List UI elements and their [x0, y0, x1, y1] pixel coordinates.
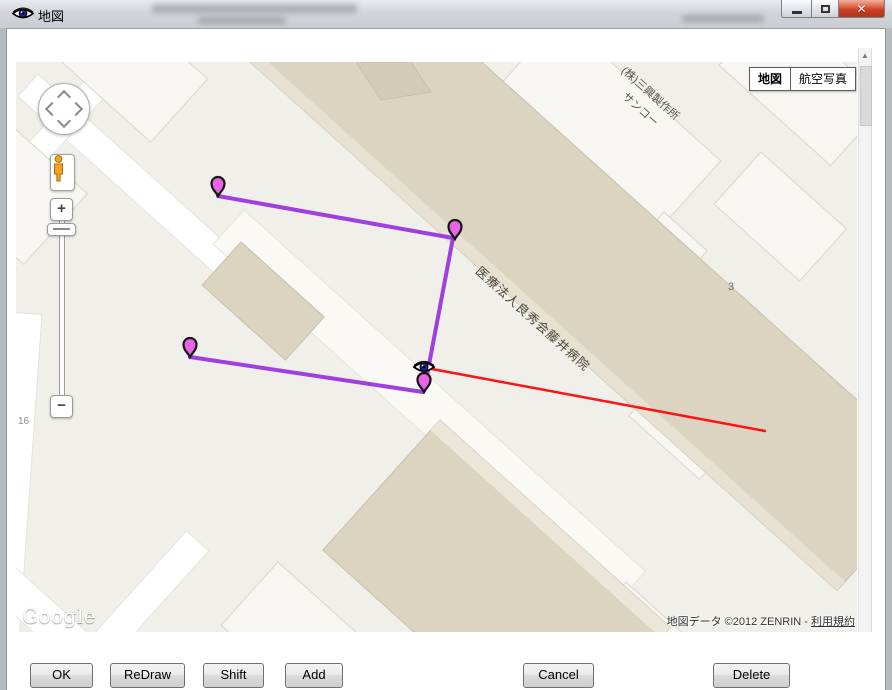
redraw-button[interactable]: ReDraw	[110, 663, 185, 688]
pegman-icon	[51, 155, 66, 182]
maximize-button[interactable]	[811, 0, 839, 18]
title-bar[interactable]: 地図 ✕	[0, 0, 892, 29]
map-tiles: (株)三興製作所 サンコー 医療法人良秀会藤井病院 3 16	[16, 62, 857, 632]
map-type-switch: 地図 航空写真	[749, 67, 856, 91]
terms-link[interactable]: 利用規約	[811, 616, 855, 628]
window-title: 地図	[38, 6, 64, 25]
google-logo: Google	[22, 604, 96, 628]
close-icon: ✕	[856, 2, 866, 16]
pan-up-icon[interactable]	[57, 90, 71, 104]
eye-cursor-icon	[414, 362, 434, 372]
background-window-artifact	[682, 15, 764, 22]
window-frame-left	[0, 28, 7, 690]
minimize-button[interactable]	[781, 0, 811, 18]
close-button[interactable]: ✕	[839, 0, 885, 18]
vertical-scrollbar[interactable]: ▲	[858, 48, 872, 632]
house-number-label: 16	[18, 416, 30, 427]
background-window-artifact	[198, 17, 286, 24]
scroll-up-icon[interactable]: ▲	[859, 48, 871, 63]
map-attribution: 地図データ ©2012 ZENRIN - 利用規約	[667, 613, 855, 629]
street-view-pegman-button[interactable]	[50, 154, 75, 191]
zoom-slider-track[interactable]	[59, 212, 65, 404]
map-dialog-window: 地図 ✕	[0, 0, 892, 690]
pan-down-icon[interactable]	[57, 114, 71, 128]
map-canvas[interactable]: (株)三興製作所 サンコー 医療法人良秀会藤井病院 3 16 地図 航空写真	[16, 62, 857, 632]
zoom-out-button[interactable]: −	[50, 395, 73, 418]
pan-left-icon[interactable]	[45, 102, 59, 116]
maximize-icon	[821, 5, 830, 13]
cancel-button[interactable]: Cancel	[523, 663, 594, 688]
map-type-satellite-button[interactable]: 航空写真	[791, 67, 856, 91]
shift-button[interactable]: Shift	[203, 663, 264, 688]
background-window-artifact	[152, 4, 357, 13]
ok-button[interactable]: OK	[30, 663, 93, 688]
zoom-slider-handle[interactable]	[47, 223, 76, 236]
pan-compass[interactable]	[38, 83, 90, 135]
window-controls: ✕	[781, 0, 885, 19]
attribution-text: 地図データ ©2012 ZENRIN -	[667, 616, 811, 628]
window-frame-right	[885, 28, 892, 690]
zoom-in-button[interactable]: +	[50, 198, 73, 221]
eye-app-icon	[12, 5, 34, 27]
pan-right-icon[interactable]	[69, 102, 83, 116]
delete-button[interactable]: Delete	[713, 663, 790, 688]
scrollbar-thumb[interactable]	[860, 66, 872, 126]
add-button[interactable]: Add	[285, 663, 343, 688]
block-number-label: 3	[728, 281, 734, 293]
minimize-icon	[792, 11, 802, 14]
map-type-map-button[interactable]: 地図	[749, 67, 791, 91]
